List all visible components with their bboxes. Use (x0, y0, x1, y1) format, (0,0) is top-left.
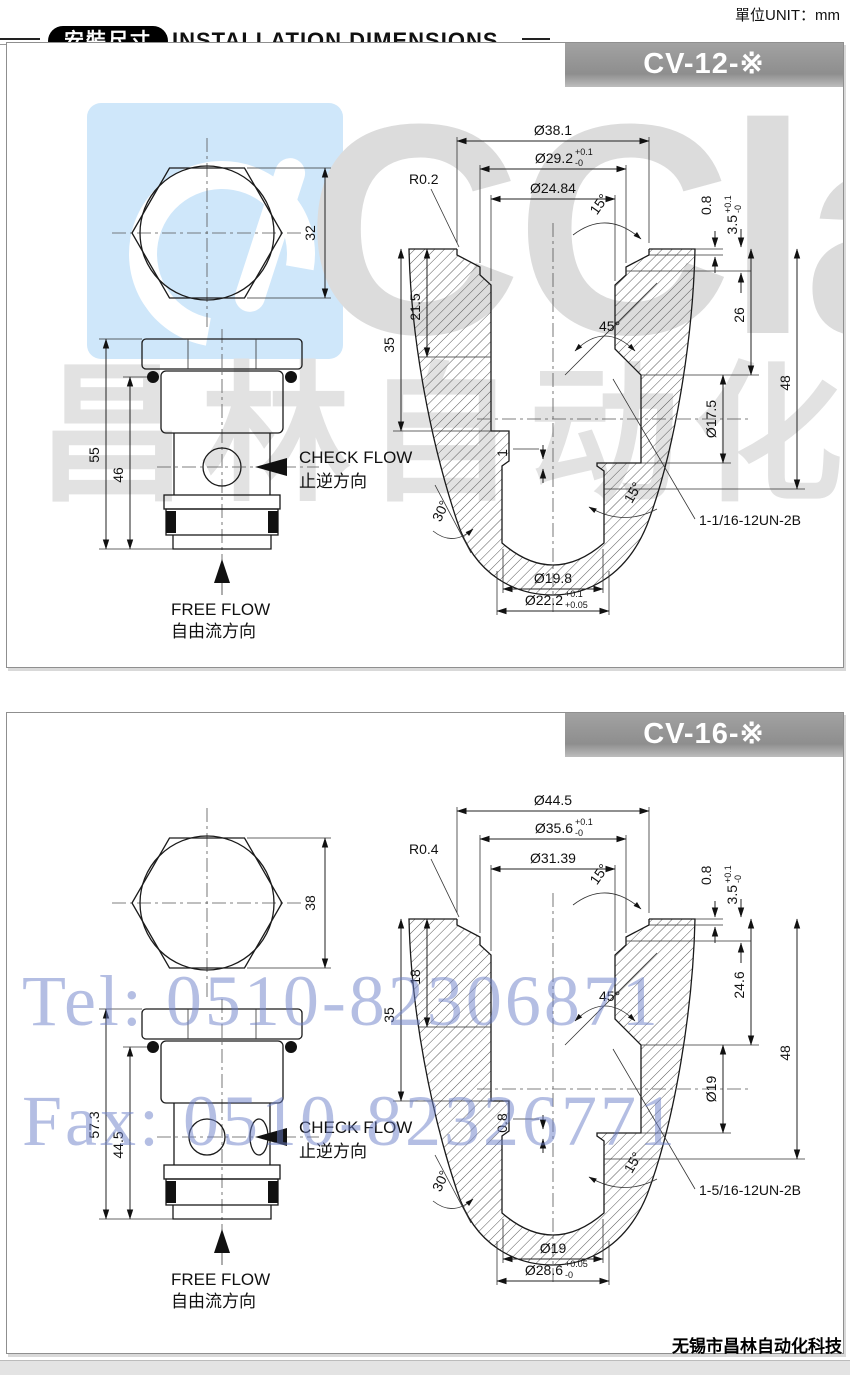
bottom-strip (0, 1360, 850, 1375)
cavity-section (409, 223, 749, 613)
flow-labels: CHECK FLOW 止逆方向 FREE FLOW 自由流方向 (171, 1118, 412, 1311)
flow-labels: CHECK FLOW 止逆方向 FREE FLOW 自由流方向 (171, 448, 412, 641)
dim-cb-tol-dn: -0 (733, 875, 743, 883)
check-flow-label-cn: 止逆方向 (299, 472, 367, 491)
check-flow-arrow-icon (255, 1128, 287, 1146)
dim-radius: R0.4 (409, 841, 439, 857)
dim-radius: R0.2 (409, 171, 439, 187)
dim-depth-main: 35 (381, 337, 397, 353)
dim-angle-top: 15° (586, 191, 611, 218)
dim-undercut: 1 (494, 449, 510, 457)
dim-total-length: 57.3 (86, 1111, 102, 1138)
dim-dia-b2-tol-dn: +0.05 (565, 600, 588, 610)
dim-angle-mid: 45° (599, 318, 620, 334)
free-flow-arrow-icon (214, 1229, 230, 1253)
dim-right-h2: 48 (777, 1045, 793, 1061)
hex-top-view: 38 (112, 808, 331, 998)
company-footer: 无锡市昌林自动化科技 (672, 1332, 842, 1357)
dim-dia-b1: Ø19.8 (534, 570, 572, 586)
cv16-drawing: 38 (7, 713, 843, 1353)
valve-side-view: 57.3 44.5 (86, 999, 319, 1233)
dim-dia-seat-tol-up: +0.1 (575, 817, 593, 827)
dim-hex-width: 32 (302, 225, 318, 241)
free-flow-arrow-icon (214, 559, 230, 583)
dim-total-length: 55 (86, 447, 102, 463)
dim-body-length: 44.5 (110, 1131, 126, 1158)
dim-thread: 1-1/16-12UN-2B (699, 512, 801, 528)
free-flow-label: FREE FLOW (171, 600, 270, 619)
panel-title-cv16: CV-16-※ (565, 713, 843, 757)
dim-body-length: 46 (110, 467, 126, 483)
check-flow-label-cn: 止逆方向 (299, 1142, 367, 1161)
dim-dia-seat-tol-dn: -0 (575, 158, 583, 168)
dim-undercut: 0.8 (494, 1113, 510, 1133)
dim-angle-top: 15° (586, 861, 611, 888)
dim-dia-b2-tol-up: +0.1 (565, 589, 583, 599)
dim-depth-main: 35 (381, 1007, 397, 1023)
dim-dia-b2: Ø22.2 (525, 592, 563, 608)
check-flow-arrow-icon (255, 458, 287, 476)
dim-dia-b2-tol-dn: -0 (565, 1270, 573, 1280)
dim-dia-b2: Ø28.6 (525, 1262, 563, 1278)
free-flow-label-cn: 自由流方向 (171, 1292, 256, 1311)
dim-thread: 1-5/16-12UN-2B (699, 1182, 801, 1198)
panel-cv16: CV-16-※ 38 (6, 712, 844, 1354)
cavity-section (409, 893, 749, 1283)
unit-label: 單位UNIT：mm (735, 4, 840, 25)
dim-dia-b2-tol-up: +0.05 (565, 1259, 588, 1269)
dim-dia-seat: Ø29.2 (535, 150, 573, 166)
dim-dia-seat-tol-up: +0.1 (575, 147, 593, 157)
dim-dia-top: Ø38.1 (534, 122, 572, 138)
dim-right-h1: 24.6 (731, 971, 747, 998)
dim-lip: 0.8 (698, 865, 714, 885)
cv12-drawing: 32 (7, 43, 843, 667)
dim-cb-tol-up: +0.1 (723, 195, 733, 213)
dim-hex-width: 38 (302, 895, 318, 911)
check-flow-label: CHECK FLOW (299, 1118, 412, 1137)
check-flow-label: CHECK FLOW (299, 448, 412, 467)
panel-title-cv12: CV-12-※ (565, 43, 843, 87)
valve-side-view: 55 46 (86, 329, 319, 563)
dim-dia-seat: Ø35.6 (535, 820, 573, 836)
dim-dia-top: Ø44.5 (534, 792, 572, 808)
dim-cb-depth: 3.5 (724, 215, 740, 235)
dim-dia-seat-tol-dn: -0 (575, 828, 583, 838)
dim-lip: 0.8 (698, 195, 714, 215)
dim-right-h2: 48 (777, 375, 793, 391)
datasheet-page: 單位UNIT：mm 安裝尺寸 INSTALLATION DIMENSIONS C… (0, 0, 850, 1375)
free-flow-label-cn: 自由流方向 (171, 622, 256, 641)
dim-dia-mid: Ø19 (703, 1076, 719, 1103)
dim-depth-seat: 21.5 (407, 293, 423, 320)
dim-depth-seat: 18 (407, 969, 423, 985)
dim-right-h1: 26 (731, 307, 747, 323)
dim-dia-b1: Ø19 (540, 1240, 567, 1256)
free-flow-label: FREE FLOW (171, 1270, 270, 1289)
dim-dia-mid: Ø17.5 (703, 400, 719, 438)
hex-top-view: 32 (112, 138, 331, 328)
dim-cb-tol-dn: -0 (733, 205, 743, 213)
dim-angle-mid: 45° (599, 988, 620, 1004)
dim-dia-bore: Ø24.84 (530, 180, 576, 196)
panel-cv12: CClair 昌林自动化 CV-12-※ (6, 42, 844, 668)
dim-cb-depth: 3.5 (724, 885, 740, 905)
dim-cb-tol-up: +0.1 (723, 865, 733, 883)
dim-dia-bore: Ø31.39 (530, 850, 576, 866)
